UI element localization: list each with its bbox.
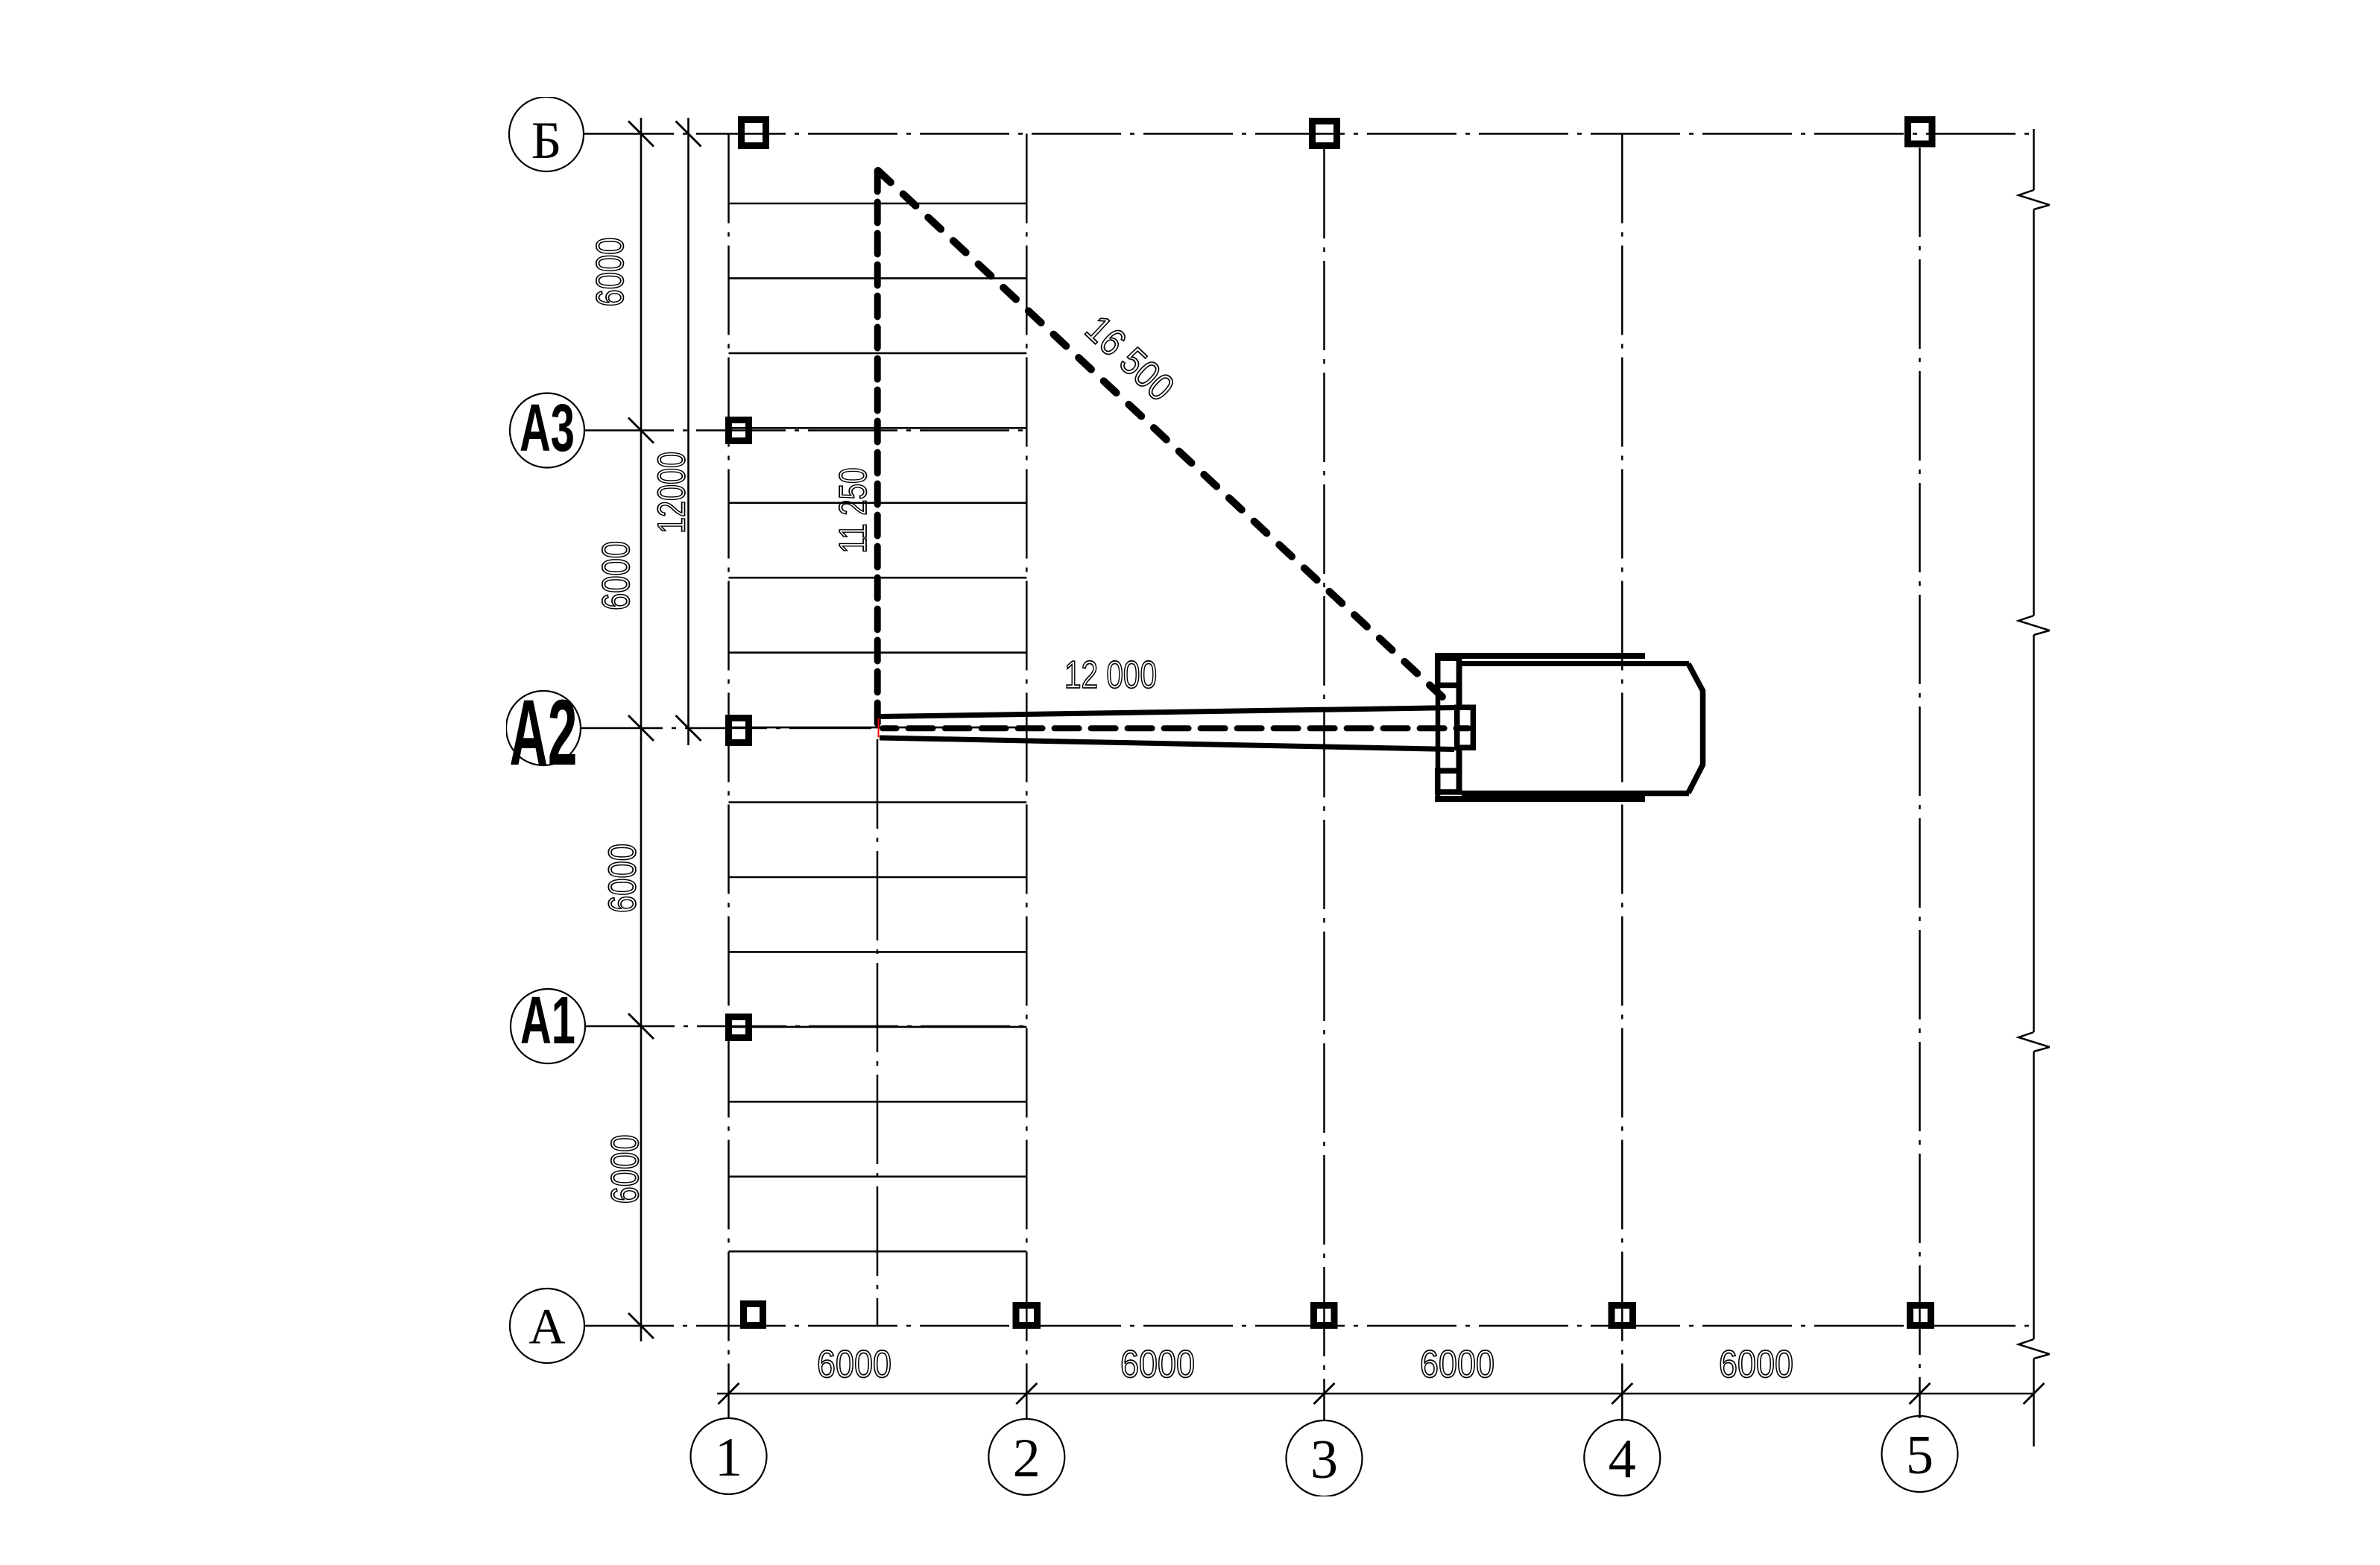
svg-text:6000: 6000	[602, 844, 645, 913]
svg-text:3: 3	[1310, 1429, 1338, 1490]
svg-text:2: 2	[1013, 1428, 1041, 1489]
svg-text:1: 1	[715, 1427, 742, 1488]
svg-text:6000: 6000	[1719, 1343, 1793, 1386]
svg-text:4: 4	[1609, 1429, 1636, 1490]
svg-text:5: 5	[1906, 1425, 1934, 1486]
svg-text:Б: Б	[531, 112, 562, 170]
svg-text:A1: A1	[520, 984, 575, 1058]
svg-text:11 250: 11 250	[832, 468, 875, 554]
svg-text:A2: A2	[510, 681, 578, 785]
svg-text:6000: 6000	[1120, 1343, 1195, 1386]
svg-text:A: A	[528, 1298, 565, 1355]
svg-text:6000: 6000	[817, 1343, 891, 1386]
svg-text:12 000: 12 000	[1064, 654, 1157, 697]
svg-text:6000: 6000	[589, 238, 632, 307]
svg-text:12000: 12000	[651, 452, 694, 534]
svg-text:6000: 6000	[604, 1135, 647, 1204]
svg-text:6000: 6000	[595, 541, 638, 610]
svg-text:A3: A3	[520, 391, 575, 466]
svg-text:6000: 6000	[1420, 1343, 1494, 1386]
